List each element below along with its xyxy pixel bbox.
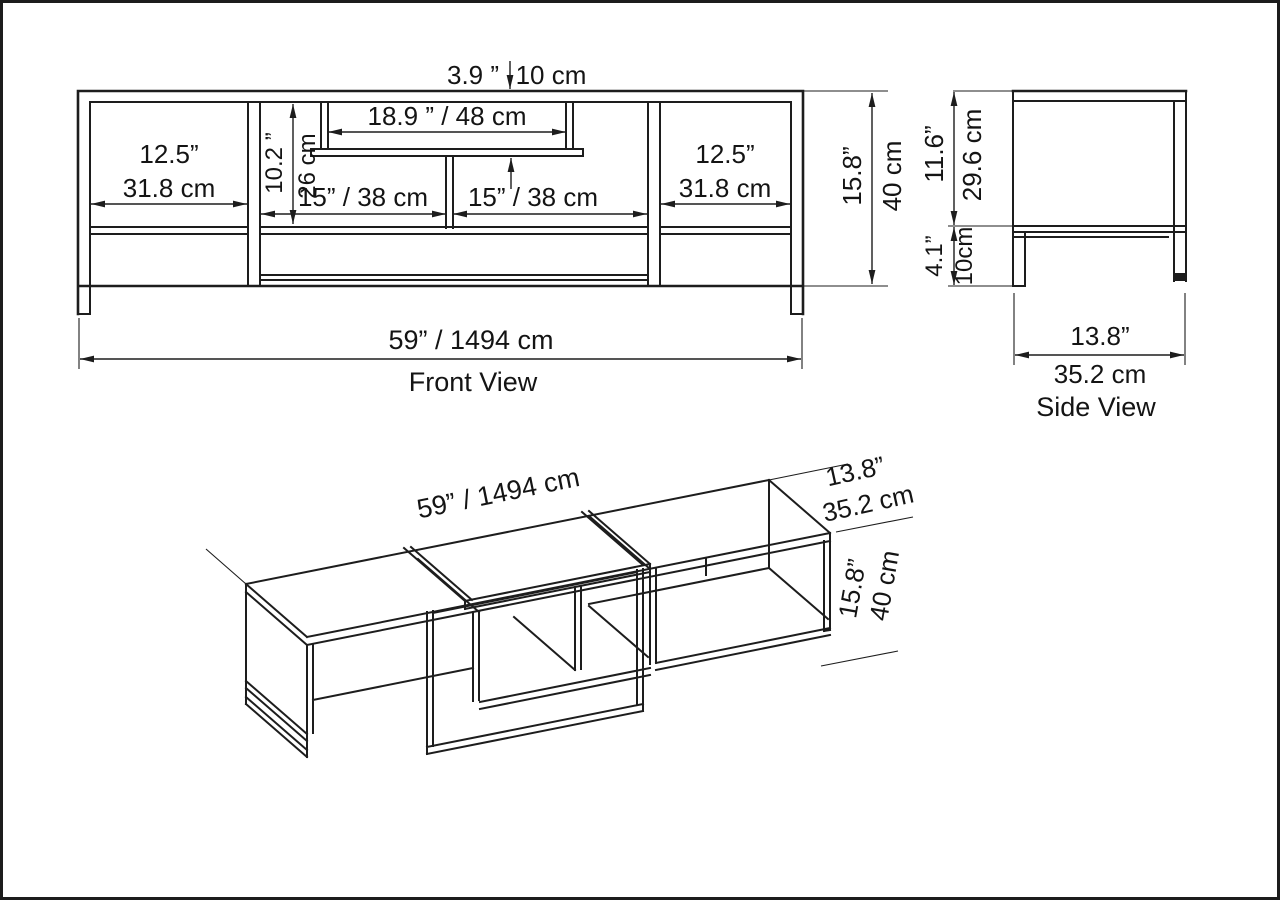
side-view-foot-pad [1174,273,1186,281]
label-iso-length: 59” / 1494 cm [414,462,582,524]
label-right-compartment-in: 12.5” [695,139,754,169]
label-leg-height-cm: 10cm [951,227,978,286]
label-upper-height-cm: 29.6 cm [957,109,987,202]
label-left-compartment-cm: 31.8 cm [123,173,216,203]
label-upper-height-in: 11.6” [919,125,949,182]
label-left-compartment-in: 12.5” [139,139,198,169]
isometric-view-drawing [206,464,913,757]
label-depth-cm: 35.2 cm [1054,359,1147,389]
label-depth-in: 13.8” [1070,321,1129,351]
label-overall-height-in: 15.8” [837,146,867,205]
label-right-compartment-cm: 31.8 cm [679,173,772,203]
label-overall-height-cm: 40 cm [877,141,907,212]
label-overall-width: 59” / 1494 cm [388,325,553,355]
label-top-gap-cm: 10 cm [516,60,587,90]
label-tv-shelf-width: 18.9 ” / 48 cm [368,101,527,131]
side-view-dimensions [954,92,1184,355]
technical-drawing-page: 3.9 ” 10 cm 18.9 ” / 48 cm 10.2 ” 26 cm … [0,0,1280,900]
front-view-labels: 3.9 ” 10 cm 18.9 ” / 48 cm 10.2 ” 26 cm … [123,60,907,397]
label-top-gap-in: 3.9 ” [447,60,499,90]
label-leg-height-in: 4.1” [921,235,948,276]
side-view-title: Side View [1036,392,1156,422]
drawing-canvas: 3.9 ” 10 cm 18.9 ” / 48 cm 10.2 ” 26 cm … [3,3,1280,900]
label-iso-height-cm: 40 cm [863,548,905,623]
front-view-title: Front View [409,367,538,397]
label-mid-right: 15” / 38 cm [468,182,598,212]
label-mid-left: 15” / 38 cm [298,182,428,212]
label-inner-height-in: 10.2 ” [261,132,288,193]
